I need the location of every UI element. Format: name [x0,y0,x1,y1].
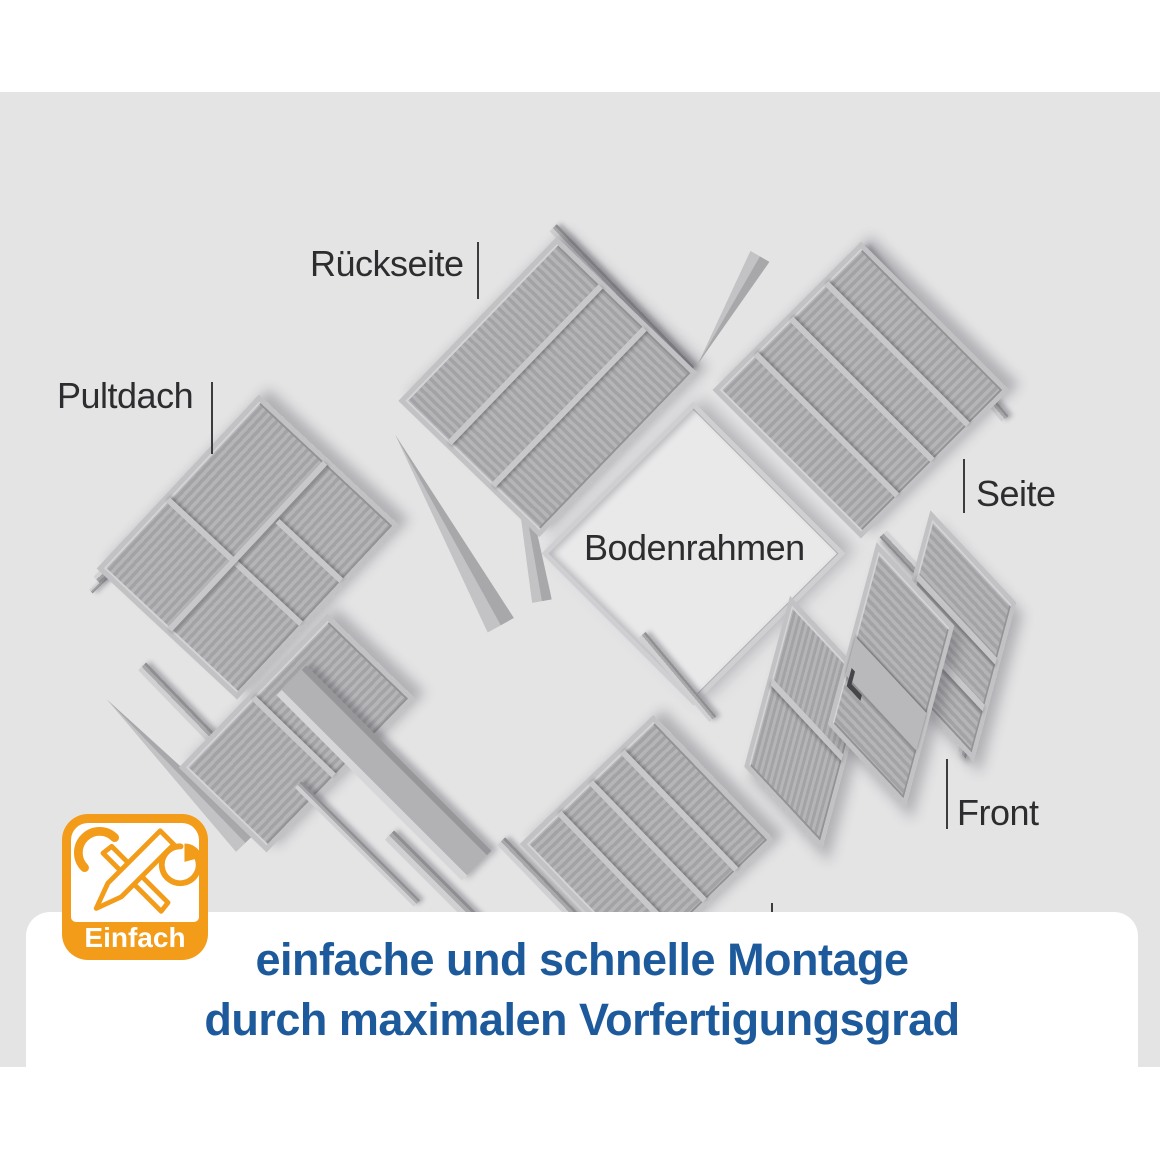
leader-rueckseite [477,242,479,299]
panel-rail [589,780,707,902]
panel-rail [447,284,603,445]
leader-pultdach [211,382,213,454]
label-seite-top: Seite [976,476,1056,512]
einfach-badge-label: Einfach [62,922,208,955]
leader-front [946,759,948,829]
label-pultdach: Pultdach [57,378,193,414]
panel-rail [620,750,738,872]
panel-rail [754,352,900,498]
label-rueckseite: Rückseite [310,246,464,282]
panel-rail [789,316,935,462]
einfach-badge: Einfach [62,814,208,960]
leader-seite-top [963,459,965,513]
tools-and-pie-chart-icon [71,825,199,922]
panel-rail [824,281,970,427]
panel-rail [276,518,344,582]
panel-rail [491,327,647,488]
einfach-badge-icon-area [71,823,199,922]
label-front: Front [957,795,1039,831]
caption-line-2: durch maximalen Vorfertigungsgrad [26,990,1138,1050]
pie-chart-icon [162,843,199,883]
label-bodenrahmen: Bodenrahmen [584,530,796,566]
